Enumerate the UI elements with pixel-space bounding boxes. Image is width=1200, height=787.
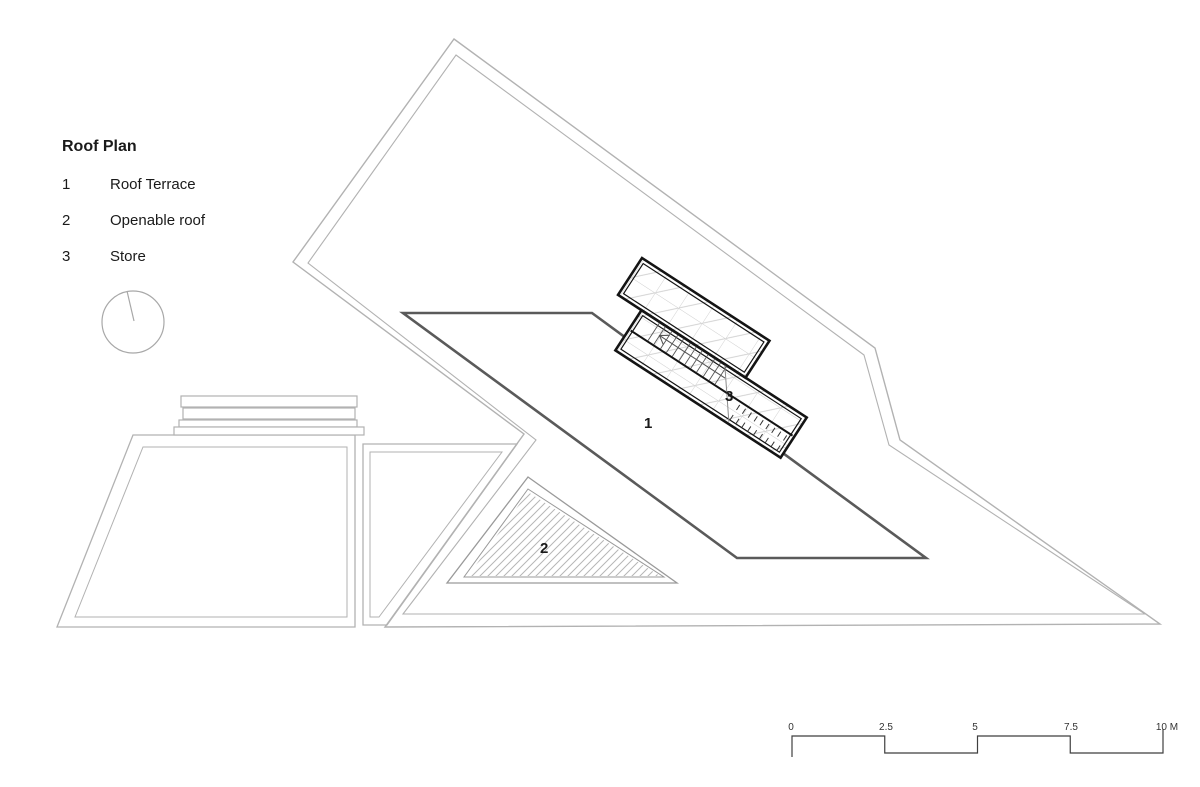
legend-title: Roof Plan [62, 138, 137, 155]
legend-item-number: 2 [62, 212, 70, 229]
scale-label: 7.5 [1064, 722, 1078, 733]
legend: Roof Plan 1 Roof Terrace 2 Openable roof… [62, 138, 206, 265]
louver-base [174, 427, 364, 435]
roof-plan-drawing: 1 2 3 Roof Plan 1 Roof Terrace 2 Openabl… [0, 0, 1200, 787]
scale-label: 5 [972, 722, 978, 733]
trapezoid-inner [75, 447, 347, 617]
store-stairs [592, 258, 831, 458]
roof-plan-page: 1 2 3 Roof Plan 1 Roof Terrace 2 Openabl… [0, 0, 1200, 787]
scale-bar: 0 2.5 5 7.5 10 M [788, 722, 1178, 757]
trapezoid-outer [57, 435, 355, 627]
louver-bar [183, 408, 355, 419]
scale-label: 0 [788, 722, 794, 733]
north-indicator [102, 291, 164, 353]
louver-bar [179, 420, 357, 427]
plan-label-store: 3 [725, 388, 733, 405]
left-wing-trapezoid [57, 435, 355, 627]
legend-item-number: 1 [62, 176, 70, 193]
louver-stack [174, 396, 364, 435]
strip-inner [370, 452, 502, 617]
terrace-grid [246, 0, 829, 193]
openable-roof-hatch [468, 492, 660, 576]
roof-terrace [246, 0, 926, 558]
middle-strip [363, 444, 517, 625]
scale-label: 10 M [1156, 722, 1178, 733]
plan-label-roof-terrace: 1 [644, 415, 652, 432]
louver-bar [181, 396, 357, 407]
scale-label: 2.5 [879, 722, 893, 733]
legend-item-label: Roof Terrace [110, 176, 196, 193]
legend-item-label: Openable roof [110, 212, 206, 229]
north-pointer [127, 291, 134, 321]
north-circle [102, 291, 164, 353]
legend-item-number: 3 [62, 248, 70, 265]
scale-bar-line [792, 729, 1163, 757]
legend-item-label: Store [110, 248, 146, 265]
plan-label-openable-roof: 2 [540, 540, 548, 557]
